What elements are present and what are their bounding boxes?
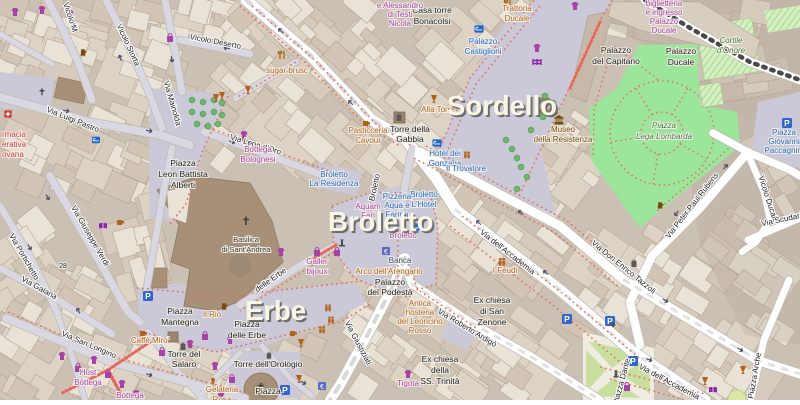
svg-text:Museo: Museo — [551, 125, 576, 134]
svg-text:ovana: ovana — [2, 150, 24, 159]
svg-text:erativa: erativa — [2, 140, 27, 149]
svg-text:Il Trovatore: Il Trovatore — [446, 164, 487, 173]
svg-text:Bottega: Bottega — [244, 145, 272, 154]
svg-text:Gelateria: Gelateria — [206, 385, 239, 394]
svg-text:biglietteria: biglietteria — [646, 0, 683, 8]
svg-text:Nicola: Nicola — [389, 19, 412, 28]
svg-text:Broletto: Broletto — [320, 170, 348, 179]
svg-text:La Residenza: La Residenza — [310, 179, 359, 188]
svg-text:bijoux: bijoux — [307, 267, 328, 276]
svg-text:Ducale: Ducale — [668, 57, 695, 67]
svg-text:Torre dell'Orologio: Torre dell'Orologio — [234, 359, 303, 369]
svg-text:Broletto: Broletto — [410, 190, 438, 199]
svg-text:Piazza: Piazza — [772, 128, 797, 137]
svg-text:Alberti: Alberti — [171, 180, 195, 190]
svg-text:Basilica: Basilica — [233, 235, 260, 244]
svg-text:Castiglioni: Castiglioni — [465, 47, 502, 56]
svg-text:Sordello: Sordello — [447, 90, 557, 121]
svg-text:Palazzo: Palazzo — [666, 46, 697, 56]
svg-text:Piazza: Piazza — [170, 158, 196, 168]
svg-text:Piazza: Piazza — [255, 386, 281, 396]
svg-text:hosteria: hosteria — [406, 308, 435, 317]
svg-text:Bottega: Bottega — [116, 391, 144, 400]
svg-text:Palazzo: Palazzo — [375, 277, 406, 287]
svg-text:Erbe: Erbe — [245, 295, 306, 326]
svg-text:della: della — [431, 365, 449, 375]
svg-text:Bolognesi: Bolognesi — [240, 155, 275, 164]
svg-text:Ducale: Ducale — [505, 14, 530, 23]
svg-text:di San: di San — [480, 306, 504, 316]
svg-text:Rosso: Rosso — [409, 326, 432, 335]
svg-text:Paccagnini: Paccagnini — [764, 146, 800, 155]
svg-text:Rosa: Rosa — [213, 395, 232, 400]
svg-text:Il Rio: Il Rio — [203, 310, 222, 319]
svg-text:Piazza: Piazza — [167, 306, 193, 316]
svg-text:Palazzo: Palazzo — [650, 17, 679, 26]
svg-text:Mantegna: Mantegna — [161, 317, 199, 327]
svg-text:Tigota: Tigota — [397, 379, 419, 388]
svg-text:Hotel dei: Hotel dei — [429, 149, 461, 158]
svg-text:delle Erbe: delle Erbe — [228, 330, 267, 340]
svg-text:Caffè Miro': Caffè Miro' — [131, 336, 170, 345]
svg-text:28: 28 — [59, 263, 67, 270]
svg-text:Cortile: Cortile — [719, 36, 743, 45]
svg-text:Zenone: Zenone — [478, 317, 507, 327]
svg-text:di Testi: di Testi — [388, 10, 413, 19]
svg-text:Cavour: Cavour — [355, 136, 381, 145]
svg-text:e ingresso: e ingresso — [646, 8, 683, 17]
svg-text:del Podestà: del Podestà — [368, 287, 413, 297]
svg-text:Bonacolsi: Bonacolsi — [414, 16, 451, 26]
svg-text:rmacia: rmacia — [2, 130, 27, 139]
svg-text:I Feudi: I Feudi — [493, 266, 518, 275]
svg-text:Palazzo: Palazzo — [601, 45, 632, 55]
svg-text:Pasticceria: Pasticceria — [348, 126, 388, 135]
svg-text:Torre della: Torre della — [390, 124, 430, 134]
svg-text:Leon Battista: Leon Battista — [158, 169, 208, 179]
svg-text:d'Onore: d'Onore — [717, 46, 746, 55]
svg-text:Host: Host — [80, 368, 97, 377]
svg-text:Arco dell'Arengario: Arco dell'Arengario — [355, 267, 423, 276]
svg-text:Palazzo: Palazzo — [469, 37, 498, 46]
svg-text:sugar brusc: sugar brusc — [266, 66, 308, 75]
svg-text:Banca: Banca — [389, 256, 412, 265]
svg-text:Torre del: Torre del — [167, 349, 200, 359]
svg-text:Ducale: Ducale — [652, 26, 677, 35]
svg-text:Bottega: Bottega — [74, 378, 102, 387]
svg-text:del Capitano: del Capitano — [592, 56, 640, 66]
svg-text:Gabbia: Gabbia — [396, 134, 424, 144]
svg-text:Piazza: Piazza — [652, 121, 677, 130]
svg-text:Antica: Antica — [409, 299, 432, 308]
svg-text:Trattoria: Trattoria — [502, 4, 532, 13]
svg-text:Broletto: Broletto — [328, 206, 433, 237]
svg-text:del Leoncino: del Leoncino — [397, 317, 443, 326]
svg-text:Galler: Galler — [306, 257, 328, 266]
svg-text:Ex chiesa: Ex chiesa — [474, 295, 511, 305]
svg-text:di Sant'Andrea: di Sant'Andrea — [222, 245, 272, 254]
svg-text:Pizzeria: Pizzeria — [383, 192, 412, 201]
svg-text:Salaro: Salaro — [172, 359, 197, 369]
svg-text:Giovanni: Giovanni — [768, 137, 800, 146]
svg-text:SS. Trinità: SS. Trinità — [420, 376, 459, 386]
svg-text:Lega Lombarda: Lega Lombarda — [636, 132, 693, 141]
svg-text:Ex chiesa: Ex chiesa — [422, 354, 459, 364]
svg-text:e Alessandro: e Alessandro — [377, 1, 424, 10]
svg-text:della Resistenza: della Resistenza — [534, 135, 593, 144]
